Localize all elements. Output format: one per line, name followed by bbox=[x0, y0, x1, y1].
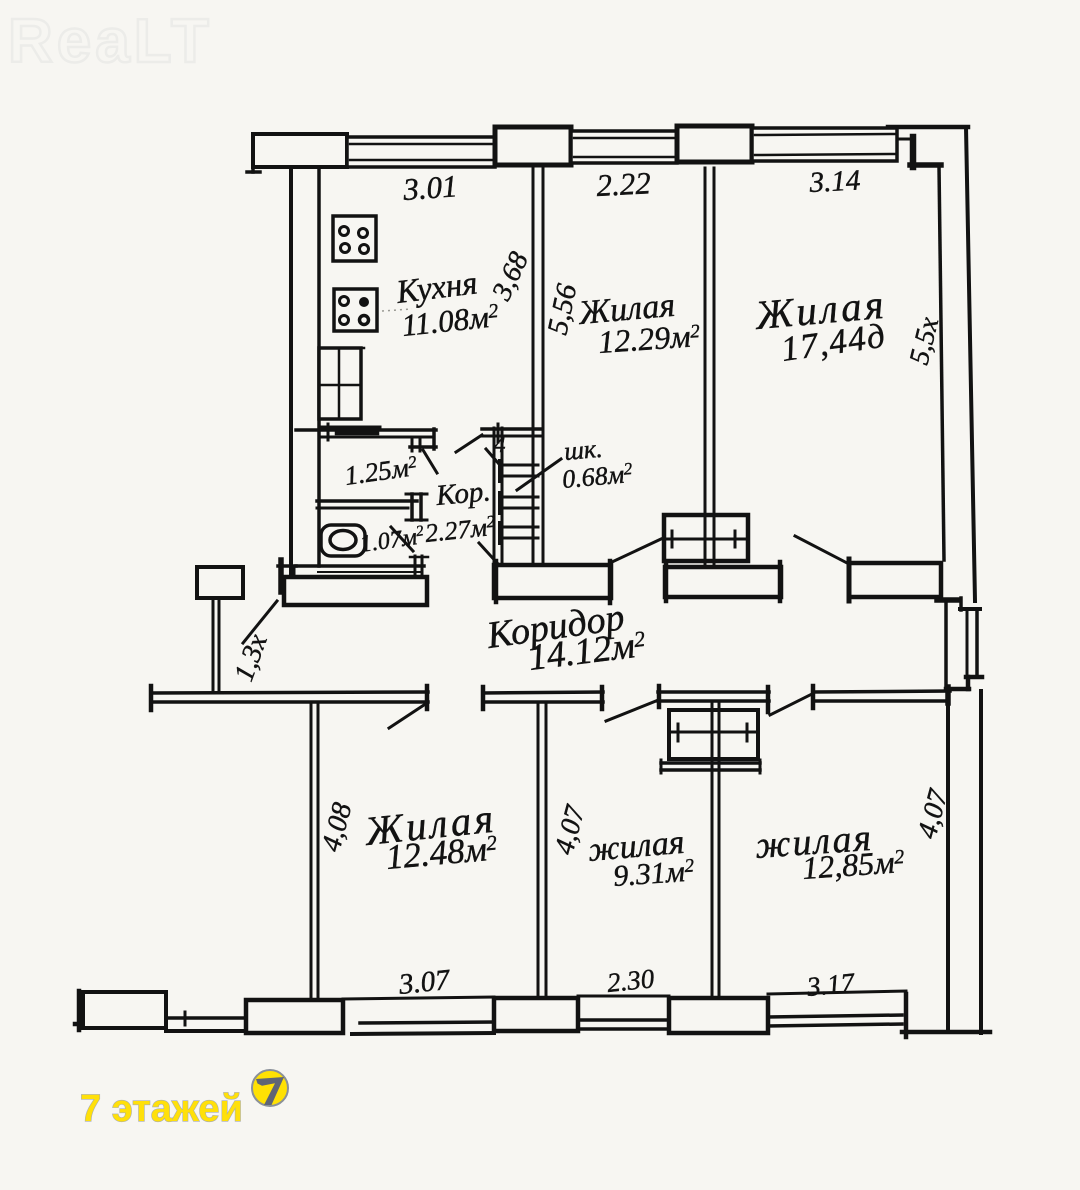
svg-text:3.01: 3.01 bbox=[401, 168, 459, 207]
svg-text:ReaLT: ReaLT bbox=[8, 7, 213, 76]
svg-text:3.14: 3.14 bbox=[808, 164, 861, 199]
svg-text:2.30: 2.30 bbox=[605, 963, 656, 998]
svg-text:0.68м2: 0.68м2 bbox=[561, 459, 634, 494]
svg-text:12.29м2: 12.29м2 bbox=[597, 317, 702, 360]
svg-text:3.17: 3.17 bbox=[804, 967, 857, 1002]
svg-text:7 этажей: 7 этажей bbox=[80, 1088, 243, 1130]
svg-text:9.31м2: 9.31м2 bbox=[612, 854, 696, 893]
svg-text:3.07: 3.07 bbox=[396, 964, 452, 1001]
svg-text:2.22: 2.22 bbox=[596, 165, 652, 203]
svg-text:12,85м2: 12,85м2 bbox=[801, 843, 906, 886]
svg-text:4: 4 bbox=[494, 432, 506, 457]
svg-text:Кор.: Кор. bbox=[434, 475, 492, 512]
